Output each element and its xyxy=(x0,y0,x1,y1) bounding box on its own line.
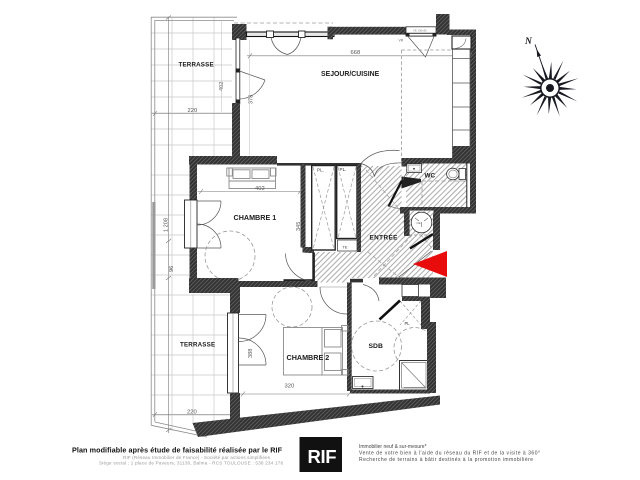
svg-text:VR: VR xyxy=(399,39,404,43)
svg-text:SDB: SDB xyxy=(369,343,383,350)
svg-text:Siège social : 1 place de Pave: Siège social : 1 place de Paveurs, 31130… xyxy=(99,460,283,465)
svg-text:Vente de votre bien à l'aide d: Vente de votre bien à l'aide du réseau d… xyxy=(359,451,540,457)
svg-text:CE: CE xyxy=(417,221,421,225)
svg-text:PL: PL xyxy=(404,220,410,225)
svg-text:668: 668 xyxy=(351,50,361,56)
svg-text:402: 402 xyxy=(255,186,265,192)
svg-text:WC: WC xyxy=(425,172,436,179)
svg-text:TERRASSE: TERRASSE xyxy=(180,342,215,349)
svg-text:TERRASSE: TERRASSE xyxy=(179,62,214,69)
svg-text:ENTRÉE: ENTRÉE xyxy=(370,233,399,242)
svg-text:N: N xyxy=(524,37,533,47)
svg-text:320: 320 xyxy=(285,384,295,390)
svg-text:220: 220 xyxy=(188,108,198,114)
svg-text:388: 388 xyxy=(248,349,254,358)
svg-text:CHAMBRE 1: CHAMBRE 1 xyxy=(234,213,277,222)
svg-text:CHAMBRE 2: CHAMBRE 2 xyxy=(287,353,330,362)
svg-text:SEJOUR/CUISINE: SEJOUR/CUISINE xyxy=(321,71,380,78)
svg-text:1 208: 1 208 xyxy=(164,218,170,232)
svg-text:Plan modifiable après étude de: Plan modifiable après étude de faisabili… xyxy=(72,446,283,455)
svg-text:PL: PL xyxy=(405,321,411,326)
svg-text:VE 190x95: VE 190x95 xyxy=(413,29,427,33)
svg-text:96: 96 xyxy=(169,266,175,272)
svg-text:402: 402 xyxy=(219,82,225,91)
svg-text:345: 345 xyxy=(296,222,302,231)
svg-text:Recherche de terrains à bâtir: Recherche de terrains à bâtir destinés à… xyxy=(359,457,533,463)
svg-text:PL.: PL. xyxy=(317,168,324,173)
svg-text:TE: TE xyxy=(343,246,348,250)
svg-text:PL.: PL. xyxy=(340,167,347,172)
svg-text:220: 220 xyxy=(187,410,197,416)
svg-text:Immobilier neuf & sur-mesure*: Immobilier neuf & sur-mesure* xyxy=(359,444,427,450)
svg-text:RIF (Réseau Immobilier de Fran: RIF (Réseau Immobilier de France) - Soci… xyxy=(123,455,271,460)
svg-text:RIF: RIF xyxy=(308,446,337,467)
